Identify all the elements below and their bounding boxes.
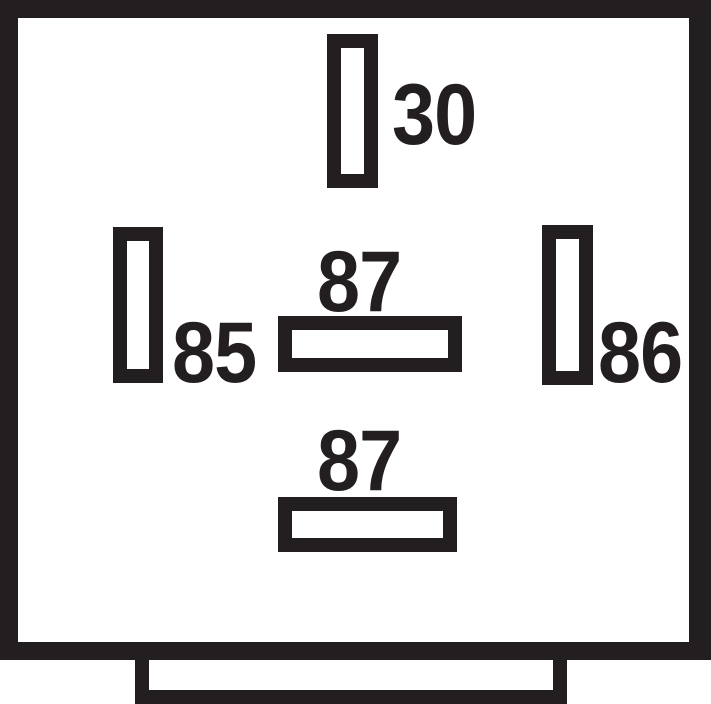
pin-85-terminal xyxy=(113,227,163,383)
pin-86-label: 86 xyxy=(598,310,682,396)
mounting-tab xyxy=(135,660,567,704)
pin-87-second-label: 87 xyxy=(317,418,401,504)
pin-86-terminal xyxy=(542,225,593,385)
pin-85-label: 85 xyxy=(172,310,256,396)
pin-30-terminal xyxy=(327,34,378,188)
relay-pinout-diagram: 30 85 86 87 87 xyxy=(0,0,711,704)
pin-30-label: 30 xyxy=(392,72,476,158)
pin-87-label: 87 xyxy=(317,239,401,325)
